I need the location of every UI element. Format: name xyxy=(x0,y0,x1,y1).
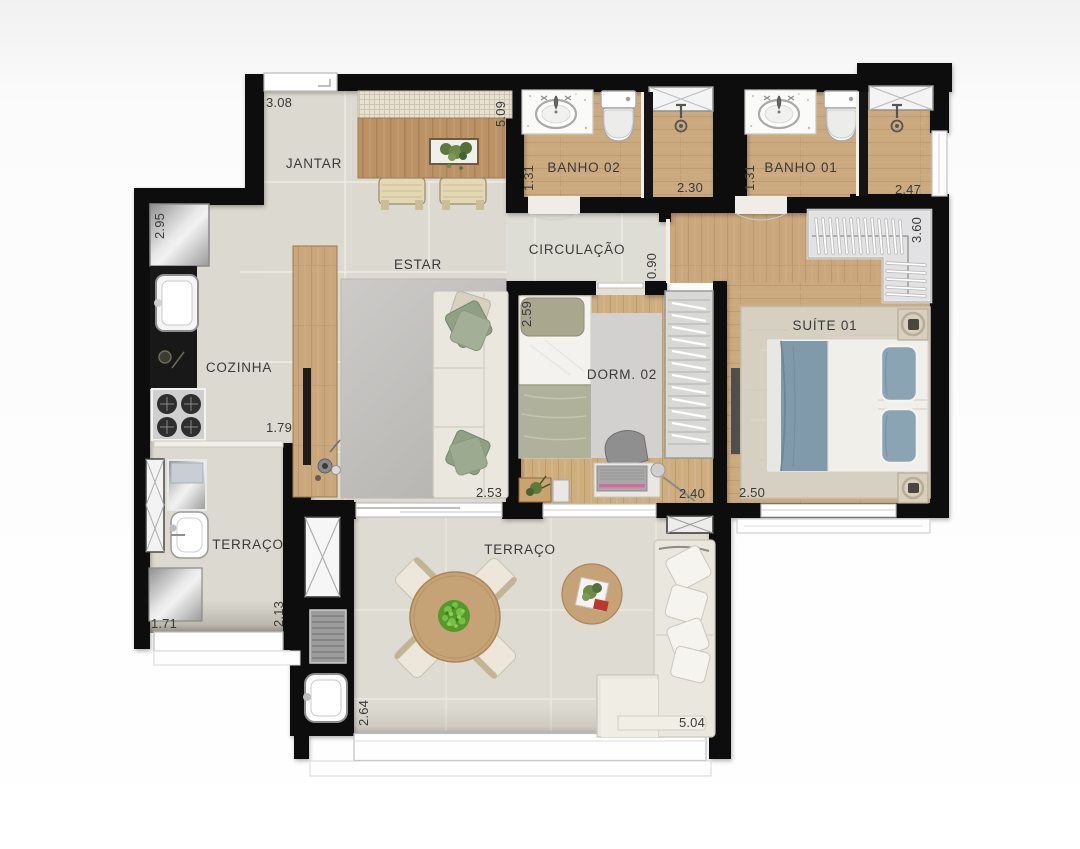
svg-text:2.50: 2.50 xyxy=(739,485,765,500)
svg-text:2.64: 2.64 xyxy=(356,700,371,726)
svg-text:2.59: 2.59 xyxy=(519,301,534,327)
svg-text:BANHO 02: BANHO 02 xyxy=(547,160,620,175)
svg-text:COZINHA: COZINHA xyxy=(206,360,272,375)
svg-text:BANHO 01: BANHO 01 xyxy=(764,160,837,175)
svg-text:1.71: 1.71 xyxy=(151,616,177,631)
svg-text:TERRAÇO: TERRAÇO xyxy=(212,537,284,552)
svg-text:5.04: 5.04 xyxy=(679,715,705,730)
svg-text:1.31: 1.31 xyxy=(742,165,757,191)
svg-text:1.79: 1.79 xyxy=(266,420,292,435)
svg-text:SUÍTE 01: SUÍTE 01 xyxy=(793,318,858,333)
svg-text:2.13: 2.13 xyxy=(271,601,286,627)
svg-text:2.53: 2.53 xyxy=(476,485,502,500)
svg-text:2.95: 2.95 xyxy=(152,213,167,239)
svg-text:ESTAR: ESTAR xyxy=(394,257,442,272)
svg-text:5.09: 5.09 xyxy=(493,101,508,127)
svg-text:0.90: 0.90 xyxy=(644,253,659,279)
svg-text:1.31: 1.31 xyxy=(521,165,536,191)
svg-text:CIRCULAÇÃO: CIRCULAÇÃO xyxy=(529,242,626,257)
svg-text:TERRAÇO: TERRAÇO xyxy=(484,542,556,557)
svg-text:2.30: 2.30 xyxy=(677,180,703,195)
svg-text:DORM. 02: DORM. 02 xyxy=(587,367,657,382)
svg-text:3.60: 3.60 xyxy=(909,217,924,243)
svg-text:JANTAR: JANTAR xyxy=(286,156,342,171)
svg-text:2.47: 2.47 xyxy=(895,182,921,197)
svg-text:2.40: 2.40 xyxy=(679,486,705,501)
svg-text:3.08: 3.08 xyxy=(266,95,292,110)
